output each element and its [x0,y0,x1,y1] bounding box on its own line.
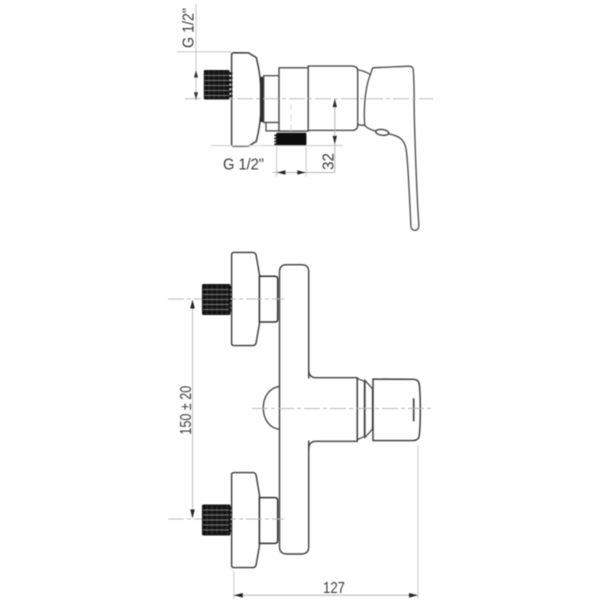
svg-text:32: 32 [320,153,337,170]
svg-text:127: 127 [323,580,345,597]
svg-text:G 1/2": G 1/2" [223,157,264,174]
svg-text:150 ± 20: 150 ± 20 [178,385,195,434]
svg-text:G 1/2": G 1/2" [181,8,198,48]
